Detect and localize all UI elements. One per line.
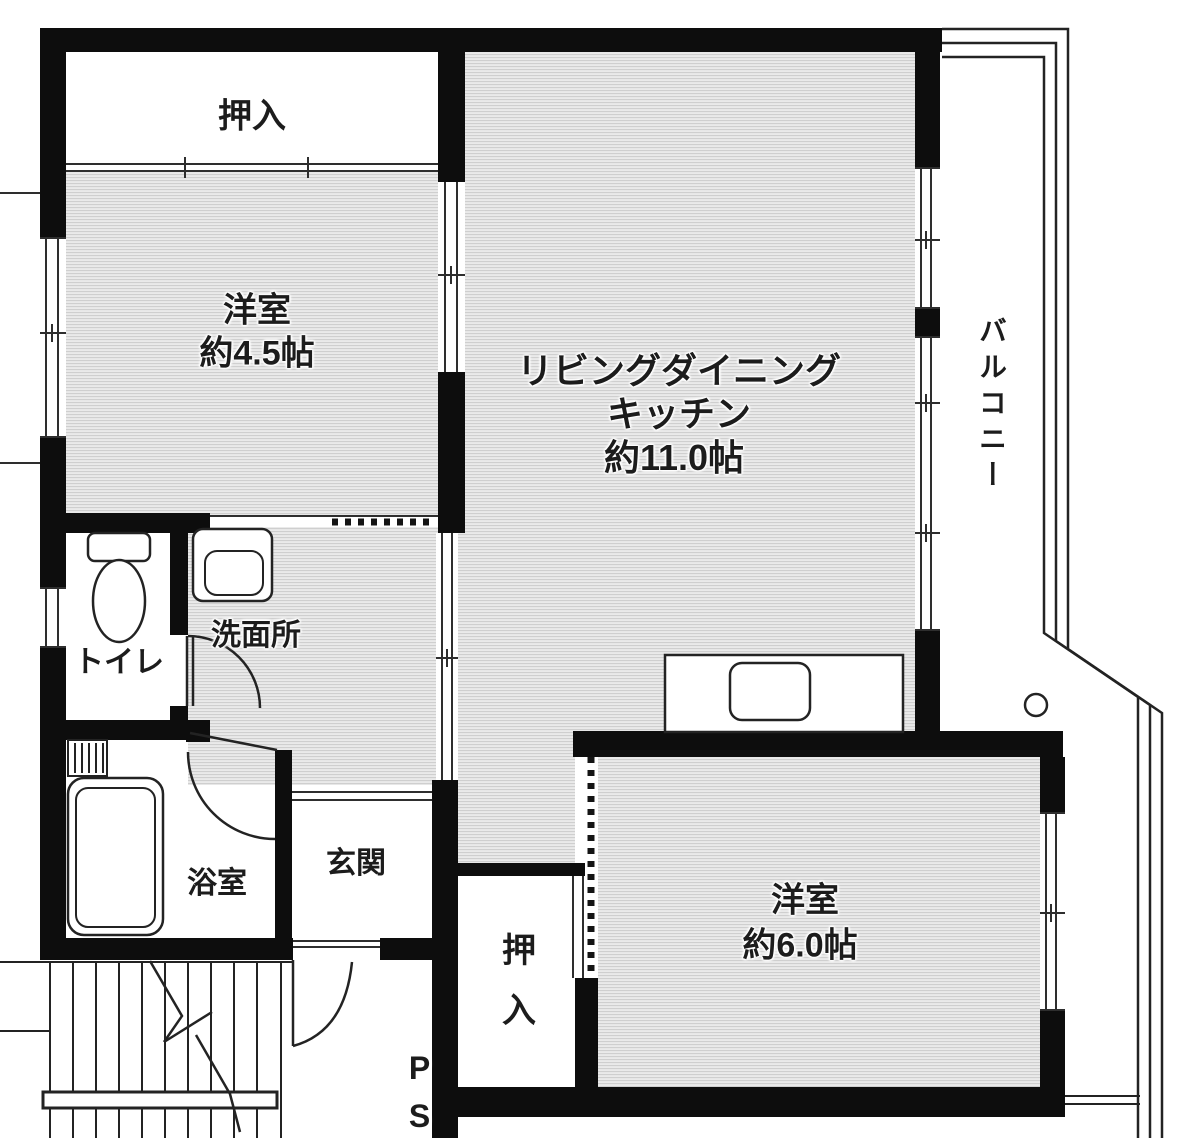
window-bedroom-large	[1040, 813, 1065, 1010]
toilet-bowl-icon	[93, 560, 145, 642]
kitchen-sink-icon	[730, 663, 810, 720]
label-pipe-space: PS	[401, 1050, 438, 1138]
entrance-door	[293, 960, 352, 1046]
label-bathroom: 浴室	[187, 858, 247, 902]
label-balcony: バルコニー	[971, 316, 1011, 496]
window-bedroom-small	[40, 238, 66, 437]
stair-landing	[43, 1092, 277, 1108]
window-ldk-lower	[915, 337, 940, 630]
window-ldk-upper	[915, 168, 940, 308]
label-closet-bottom: 押入	[492, 932, 541, 1052]
balcony-drain-icon	[1025, 694, 1047, 716]
label-bedroom-large-name: 洋室	[771, 873, 839, 922]
washbasin-bowl-icon	[205, 551, 263, 595]
label-bedroom-small-size: 約4.5帖	[199, 326, 314, 375]
floor-hallway	[456, 732, 575, 863]
label-toilet: トイレ	[74, 637, 164, 681]
sliding-door-hall-ldk	[436, 533, 458, 780]
label-bedroom-small-name: 洋室	[223, 283, 291, 332]
floorplan-drawing	[0, 0, 1200, 1138]
label-ldk-line3: 約11.0帖	[604, 429, 744, 481]
toilet-tank-icon	[88, 533, 150, 561]
label-bedroom-large-size: 約6.0帖	[742, 918, 857, 967]
label-washroom: 洗面所	[211, 610, 301, 654]
label-closet-top: 押入	[218, 89, 286, 138]
floorplan: 押入 洋室 約4.5帖 リビングダイニング キッチン 約11.0帖 バルコニー …	[0, 0, 1200, 1138]
sliding-door-bedroom-ldk	[438, 182, 465, 372]
shower-drain-icon	[68, 740, 107, 776]
stairs	[0, 961, 293, 1138]
window-toilet	[40, 588, 66, 647]
bathtub-inner-icon	[76, 788, 155, 927]
label-entrance: 玄関	[326, 838, 386, 882]
